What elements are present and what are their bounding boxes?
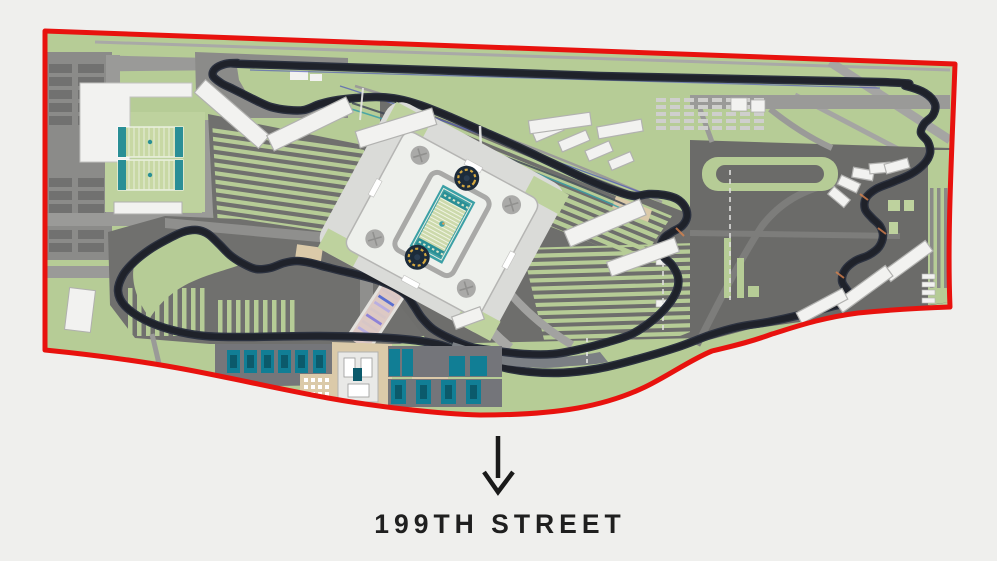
- svg-text:199TH STREET: 199TH STREET: [374, 509, 625, 539]
